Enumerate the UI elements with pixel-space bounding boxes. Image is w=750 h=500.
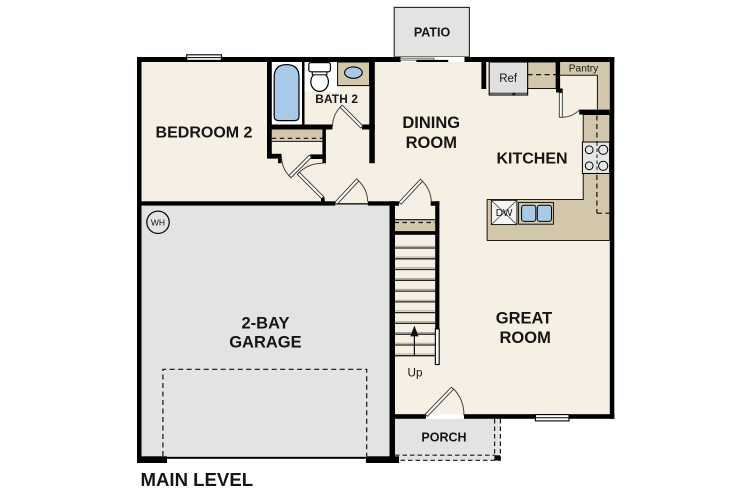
svg-text:MAIN LEVEL: MAIN LEVEL (141, 469, 254, 490)
svg-text:PATIO: PATIO (414, 25, 451, 39)
svg-text:GREAT: GREAT (496, 310, 553, 328)
svg-text:Up: Up (408, 366, 423, 379)
svg-text:Ref: Ref (499, 73, 518, 85)
svg-text:DW: DW (496, 208, 513, 219)
svg-text:BEDROOM 2: BEDROOM 2 (156, 125, 253, 142)
svg-text:2-BAY: 2-BAY (242, 314, 290, 332)
svg-text:ROOM: ROOM (406, 134, 457, 152)
svg-text:KITCHEN: KITCHEN (496, 151, 567, 168)
svg-text:PORCH: PORCH (421, 430, 466, 444)
svg-text:BATH 2: BATH 2 (315, 92, 358, 106)
svg-text:ROOM: ROOM (500, 329, 551, 347)
svg-text:DINING: DINING (402, 114, 460, 132)
svg-text:Pantry: Pantry (569, 63, 599, 74)
svg-text:WH: WH (151, 217, 165, 227)
svg-text:GARAGE: GARAGE (229, 333, 301, 351)
